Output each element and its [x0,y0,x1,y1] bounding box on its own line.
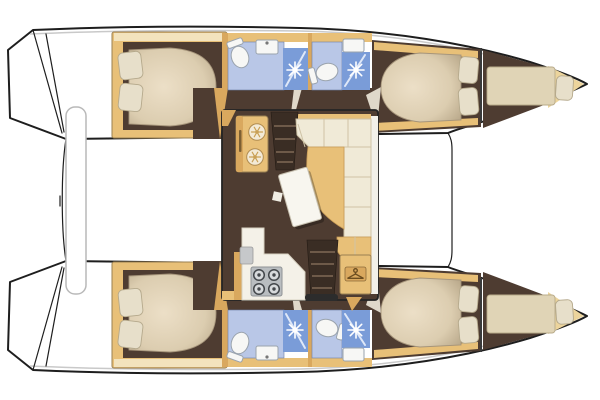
round-sink-icon [249,124,266,141]
salon [222,110,378,311]
catamaran-floorplan [0,0,600,400]
pillow [458,56,479,84]
pillow [458,87,479,116]
stb-heads-divider [308,310,312,367]
faucet [265,41,268,44]
settee-top-section [296,119,371,147]
pillow [555,75,574,100]
cockpit-bench [66,107,86,294]
burner-icon [269,270,280,281]
stb-aft-cabin-shelf [114,359,225,367]
twin-sink-unit [236,116,268,172]
sink [343,348,364,361]
shower-icon [287,62,303,78]
settee-back-shelf [298,114,371,119]
stb-forepeak-berth [487,295,555,333]
pillow [117,51,143,81]
port-companionway-stairs [271,112,298,170]
pillow [458,285,479,313]
pillow [555,299,574,324]
burner-icon [254,270,265,281]
galley-sink [240,247,253,264]
shower-icon [348,322,364,338]
settee-right-section [344,147,371,237]
table-leaf [272,191,283,202]
stair-rail [305,294,338,301]
port-aft-cabin-shelf [114,33,225,41]
pillow [118,83,144,112]
pillow [118,288,144,317]
salon-side-deck [371,116,378,294]
cabinet-handle [239,130,242,152]
pillow [458,316,479,344]
burner-icon [269,284,280,295]
round-sink-icon [247,149,264,166]
pillow [117,320,143,350]
burner-icon [254,284,265,295]
faucet [265,355,268,358]
stb-fwd-cabin-bed [381,278,461,347]
shower-icon [348,62,364,78]
port-forepeak-berth [487,67,555,105]
sink [343,39,364,52]
stair-well [307,240,338,298]
shower-icon [287,322,303,338]
port-fwd-cabin-bed [381,53,461,122]
